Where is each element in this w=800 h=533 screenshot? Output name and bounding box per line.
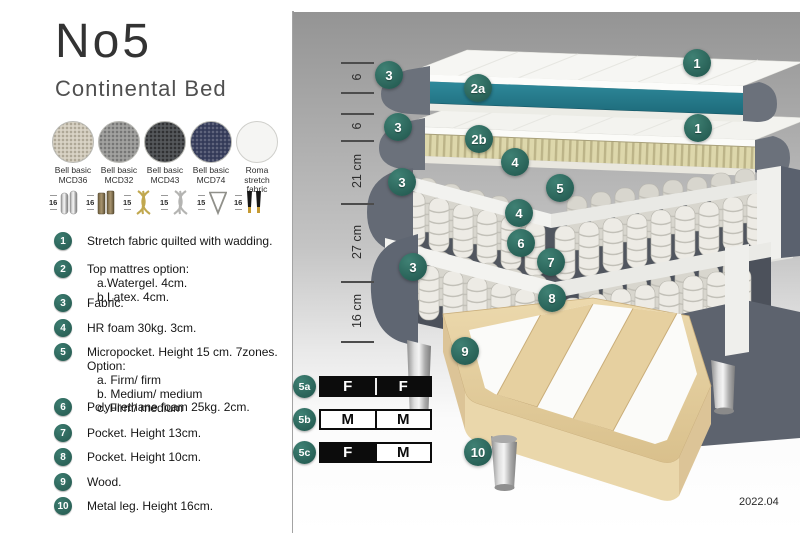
dimension-label: 21 cm bbox=[350, 141, 364, 201]
leg-twisted-silver-icon bbox=[169, 189, 193, 216]
ruler-tick bbox=[341, 341, 374, 343]
leg-option-twisted-gold: 15 bbox=[123, 189, 160, 216]
fabric-label: Bell basicMCD32 bbox=[101, 166, 137, 185]
feature-item: 1 Stretch fabric quilted with wadding. bbox=[54, 232, 292, 250]
fabric-option: Bell basicMCD43 bbox=[142, 121, 188, 195]
leg-option-block-bronze: 16 bbox=[86, 189, 123, 216]
callout-badge: 7 bbox=[537, 248, 565, 276]
firmness-bar: F F bbox=[319, 376, 432, 397]
callout-badge: 4 bbox=[505, 199, 533, 227]
page-title: No5 bbox=[55, 14, 152, 69]
feature-item: 10 Metal leg. Height 16cm. bbox=[54, 497, 292, 515]
fabric-option: Bell basicMCD74 bbox=[188, 121, 234, 195]
firmness-row-5a: 5a F F bbox=[293, 375, 432, 398]
callout-badge: 6 bbox=[507, 229, 535, 257]
firmness-bar: F M bbox=[319, 442, 432, 463]
feature-item: 7 Pocket. Height 13cm. bbox=[54, 424, 292, 442]
callout-badge: 5 bbox=[546, 174, 574, 202]
leg-option-hairpin-metal: 15 bbox=[197, 189, 234, 216]
firmness-bar: M M bbox=[319, 409, 432, 430]
firmness-row-5c: 5c F M bbox=[293, 441, 432, 464]
feature-number-badge: 4 bbox=[54, 319, 72, 337]
fabric-swatch-circle bbox=[144, 121, 186, 163]
feature-number-badge: 2 bbox=[54, 260, 72, 278]
callout-badge: 4 bbox=[501, 148, 529, 176]
leg-height: 15 bbox=[197, 193, 205, 212]
leg-height: 15 bbox=[160, 193, 168, 212]
fabric-swatch-circle bbox=[236, 121, 278, 163]
feature-number-badge: 1 bbox=[54, 232, 72, 250]
firmness-cell: M bbox=[375, 444, 431, 461]
leg-cylinder-silver-icon bbox=[58, 189, 82, 216]
leg-height: 15 bbox=[123, 193, 131, 212]
firmness-cell: F bbox=[321, 378, 375, 395]
feature-number-badge: 3 bbox=[54, 294, 72, 312]
feature-item: 4 HR foam 30kg. 3cm. bbox=[54, 319, 292, 337]
fabric-options: Bell basicMCD36 Bell basicMCD32 Bell bas… bbox=[50, 121, 280, 195]
leg-option-black-gold-tip: 16 bbox=[234, 189, 271, 216]
leg-hairpin-icon bbox=[206, 189, 230, 216]
callout-badge: 2b bbox=[465, 125, 493, 153]
feature-number-badge: 9 bbox=[54, 473, 72, 491]
leg-option-cylinder-silver: 16 bbox=[49, 189, 86, 216]
dimension-label: 27 cm bbox=[350, 212, 364, 272]
feature-item: 8 Pocket. Height 10cm. bbox=[54, 448, 292, 466]
callout-badge: 10 bbox=[464, 438, 492, 466]
fabric-label: Bell basicMCD74 bbox=[193, 166, 229, 185]
feature-number-badge: 6 bbox=[54, 398, 72, 416]
fabric-swatch-circle bbox=[190, 121, 232, 163]
ruler-tick bbox=[341, 203, 374, 205]
dimension-label: 16 cm bbox=[350, 281, 364, 341]
firmness-cell: M bbox=[321, 411, 375, 428]
firmness-badge: 5c bbox=[293, 441, 316, 464]
fabric-label: Bell basicMCD43 bbox=[147, 166, 183, 185]
callout-badge: 1 bbox=[683, 49, 711, 77]
leg-twisted-gold-icon bbox=[132, 189, 156, 216]
leg-height: 16 bbox=[49, 193, 57, 212]
callout-badge: 9 bbox=[451, 337, 479, 365]
leg-height: 16 bbox=[86, 193, 94, 212]
feature-item: 9 Wood. bbox=[54, 473, 292, 491]
diagram-panel: 6 6 21 cm 27 cm 16 cm 1 3 2a 1 3 2b 4 3 … bbox=[293, 0, 800, 533]
feature-number-badge: 7 bbox=[54, 424, 72, 442]
callout-badge: 3 bbox=[384, 113, 412, 141]
leg-height: 16 bbox=[234, 193, 242, 212]
fabric-label: Bell basicMCD36 bbox=[55, 166, 91, 185]
feature-number-badge: 10 bbox=[54, 497, 72, 515]
callout-badge: 2a bbox=[464, 74, 492, 102]
fabric-option: Bell basicMCD32 bbox=[96, 121, 142, 195]
fabric-option: Romastretch fabric bbox=[234, 121, 280, 195]
callout-badge: 3 bbox=[375, 61, 403, 89]
fabric-swatch-circle bbox=[52, 121, 94, 163]
firmness-badge: 5a bbox=[293, 375, 316, 398]
feature-item: 6 Polyurethane foam 25kg. 2cm. bbox=[54, 398, 292, 416]
fabric-option: Bell basicMCD36 bbox=[50, 121, 96, 195]
callout-badge: 3 bbox=[399, 253, 427, 281]
leg-black-gold-icon bbox=[243, 189, 267, 216]
version-date: 2022.04 bbox=[739, 496, 779, 508]
feature-item: 3 Fabric. bbox=[54, 294, 292, 312]
firmness-row-5b: 5b M M bbox=[293, 408, 432, 431]
feature-number-badge: 8 bbox=[54, 448, 72, 466]
callout-badge: 8 bbox=[538, 284, 566, 312]
info-panel: No5 Continental Bed Bell basicMCD36 Bell… bbox=[0, 0, 293, 533]
leg-option-twisted-silver: 15 bbox=[160, 189, 197, 216]
page-subtitle: Continental Bed bbox=[55, 76, 227, 102]
leg-options: 16 16 15 15 bbox=[49, 189, 271, 216]
firmness-badge: 5b bbox=[293, 408, 316, 431]
leg-block-bronze-icon bbox=[95, 189, 119, 216]
firmness-cell: F bbox=[375, 378, 431, 395]
callout-badge: 3 bbox=[388, 168, 416, 196]
fabric-swatch-circle bbox=[98, 121, 140, 163]
firmness-cell: M bbox=[375, 411, 431, 428]
firmness-cell: F bbox=[321, 444, 375, 461]
callout-badge: 1 bbox=[684, 114, 712, 142]
product-sheet: No5 Continental Bed Bell basicMCD36 Bell… bbox=[0, 0, 800, 533]
feature-number-badge: 5 bbox=[54, 343, 72, 361]
